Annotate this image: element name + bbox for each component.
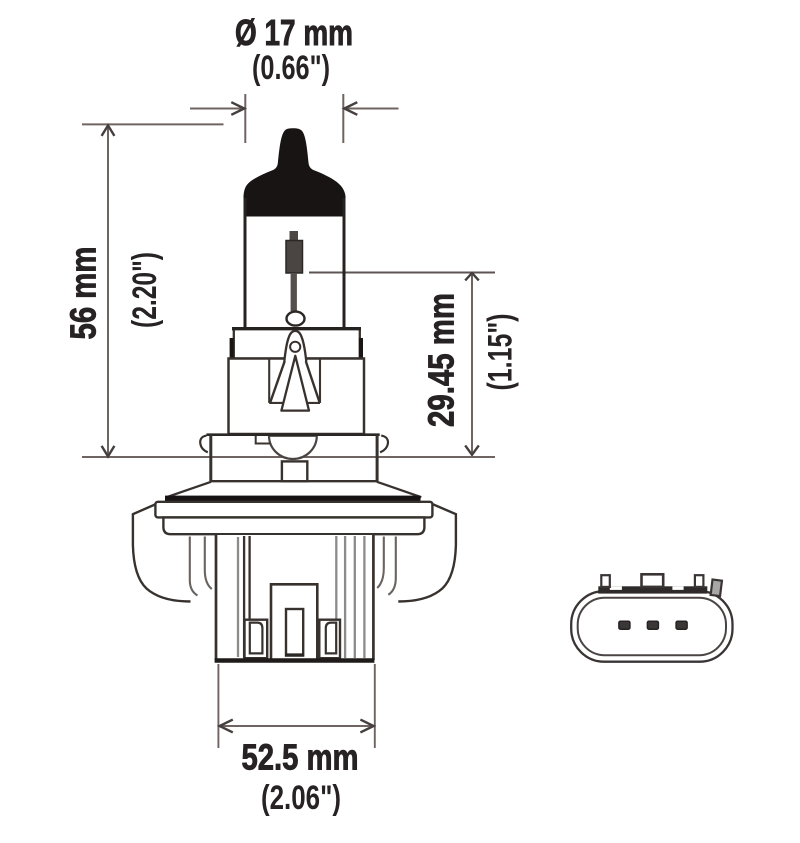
svg-text:52.5 mm: 52.5 mm bbox=[242, 737, 359, 778]
svg-text:(1.15"): (1.15") bbox=[482, 314, 520, 391]
svg-text:Ø 17 mm: Ø 17 mm bbox=[235, 12, 353, 53]
svg-text:56 mm: 56 mm bbox=[63, 247, 104, 340]
svg-text:(0.66"): (0.66") bbox=[252, 49, 330, 87]
svg-text:29.45 mm: 29.45 mm bbox=[421, 293, 462, 427]
svg-text:(2.20"): (2.20") bbox=[126, 252, 164, 328]
svg-text:(2.06"): (2.06") bbox=[261, 779, 341, 817]
